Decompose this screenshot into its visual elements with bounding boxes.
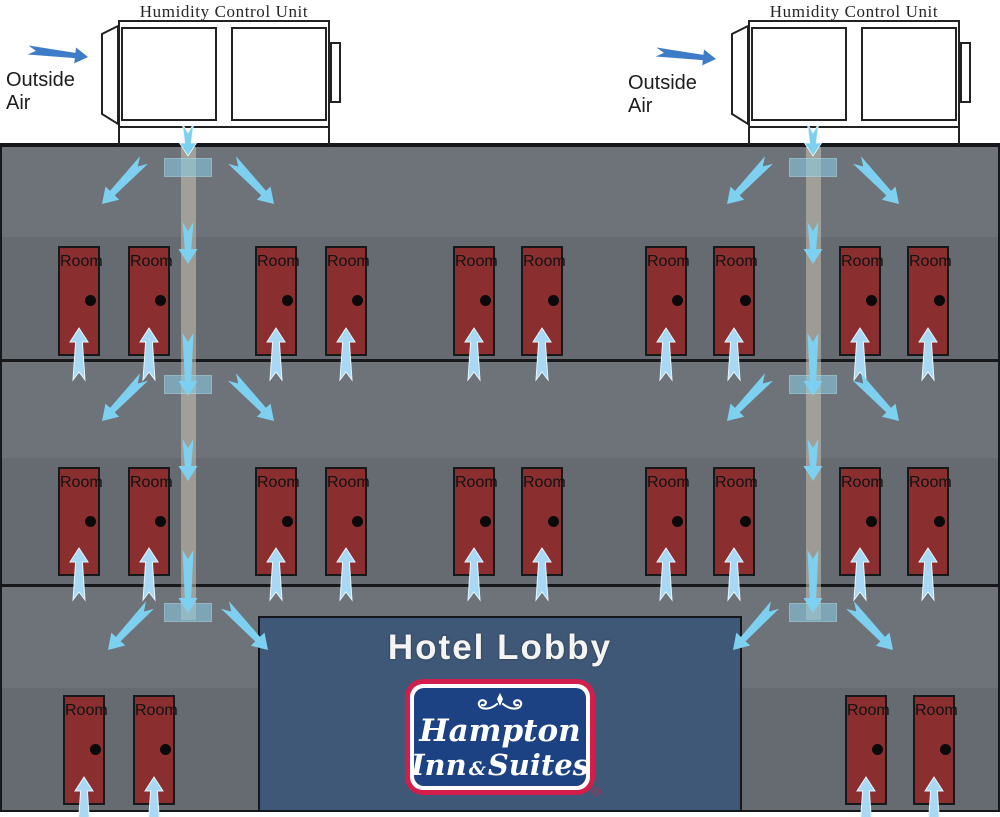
door-knob xyxy=(672,516,683,527)
room-door-label: Room xyxy=(909,253,947,271)
room-door: Room xyxy=(58,467,100,576)
outside-air-label: Outside Air xyxy=(628,72,697,118)
outside-air-label: Outside Air xyxy=(6,69,75,115)
room-door: Room xyxy=(839,467,881,576)
room-door-label: Room xyxy=(715,253,753,271)
hcu-panel xyxy=(231,27,327,121)
logo-face: Hampton Inn & Suites xyxy=(414,688,586,786)
diffuser-vent xyxy=(164,158,212,177)
room-door: Room xyxy=(713,467,755,576)
room-door: Room xyxy=(255,467,297,576)
lobby-title: Hotel Lobby xyxy=(260,628,740,668)
room-door-label: Room xyxy=(647,253,685,271)
room-door: Room xyxy=(521,467,563,576)
door-knob xyxy=(934,295,945,306)
logo-word-hampton: Hampton xyxy=(419,716,580,747)
room-door: Room xyxy=(907,467,949,576)
hcu-side-vent xyxy=(330,42,341,103)
room-door-label: Room xyxy=(455,253,493,271)
door-knob xyxy=(480,295,491,306)
diffuser-vent xyxy=(789,375,837,394)
door-knob xyxy=(155,295,166,306)
room-door: Room xyxy=(325,246,367,356)
room-door-label: Room xyxy=(60,253,98,271)
hcu-leg xyxy=(958,127,960,145)
room-door: Room xyxy=(521,246,563,356)
room-door-label: Room xyxy=(909,474,947,492)
door-knob xyxy=(740,516,751,527)
room-door-label: Room xyxy=(847,702,885,720)
room-door: Room xyxy=(325,467,367,576)
door-knob xyxy=(548,516,559,527)
room-door: Room xyxy=(63,695,105,805)
door-knob xyxy=(160,744,171,755)
floor-divider xyxy=(0,359,1000,362)
logo-ampersand: & xyxy=(469,760,486,779)
room-door-label: Room xyxy=(257,474,295,492)
logo-ornament-icon xyxy=(469,691,531,715)
outside-air-arrow-icon xyxy=(656,48,717,66)
room-door-label: Room xyxy=(257,253,295,271)
door-knob xyxy=(352,295,363,306)
door-knob xyxy=(90,744,101,755)
room-door: Room xyxy=(255,246,297,356)
room-door-label: Room xyxy=(841,474,879,492)
room-door-label: Room xyxy=(130,474,168,492)
hcu-leg xyxy=(328,127,330,145)
room-door: Room xyxy=(713,246,755,356)
logo-word-inn: Inn xyxy=(411,751,467,780)
diffuser-vent xyxy=(164,603,212,622)
door-knob xyxy=(872,744,883,755)
room-door-label: Room xyxy=(60,474,98,492)
hcu-title: Humidity Control Unit xyxy=(114,2,334,22)
door-knob xyxy=(282,295,293,306)
logo-inner-ring: Hampton Inn & Suites xyxy=(410,684,590,790)
room-door: Room xyxy=(839,246,881,356)
room-door-label: Room xyxy=(455,474,493,492)
registered-mark: ® xyxy=(592,785,601,799)
room-door-label: Room xyxy=(135,702,173,720)
floor-divider xyxy=(0,584,1000,587)
hcu-leg xyxy=(748,127,750,145)
room-door: Room xyxy=(907,246,949,356)
door-knob xyxy=(548,295,559,306)
diffuser-vent xyxy=(789,603,837,622)
door-knob xyxy=(866,295,877,306)
hcu-title: Humidity Control Unit xyxy=(744,2,964,22)
diffuser-vent xyxy=(789,158,837,177)
door-knob xyxy=(934,516,945,527)
room-door: Room xyxy=(845,695,887,805)
door-knob xyxy=(282,516,293,527)
room-door-label: Room xyxy=(327,474,365,492)
hcu-panel xyxy=(751,27,847,121)
door-knob xyxy=(480,516,491,527)
room-door-label: Room xyxy=(841,253,879,271)
door-knob xyxy=(672,295,683,306)
door-knob xyxy=(85,295,96,306)
door-knob xyxy=(85,516,96,527)
room-door: Room xyxy=(913,695,955,805)
room-door-label: Room xyxy=(523,253,561,271)
room-door-label: Room xyxy=(130,253,168,271)
diffuser-vent xyxy=(164,375,212,394)
room-door: Room xyxy=(645,246,687,356)
hcu-leg xyxy=(118,127,120,145)
hotel-airflow-diagram: RoomRoomRoomRoomRoomRoomRoomRoomRoomRoom… xyxy=(0,0,1000,817)
logo-word-suites: Suites xyxy=(488,751,589,780)
room-door-label: Room xyxy=(715,474,753,492)
room-door-label: Room xyxy=(523,474,561,492)
room-door: Room xyxy=(645,467,687,576)
door-knob xyxy=(940,744,951,755)
outside-air-arrow-icon xyxy=(28,46,89,64)
room-door-label: Room xyxy=(65,702,103,720)
hcu-side-vent xyxy=(960,42,971,103)
door-knob xyxy=(352,516,363,527)
hcu-intake-flap xyxy=(102,26,118,124)
room-door: Room xyxy=(128,246,170,356)
hcu-intake-flap xyxy=(732,26,748,124)
door-knob xyxy=(155,516,166,527)
hotel-lobby: Hotel Lobby Hampton Inn & Suites xyxy=(258,616,742,812)
hcu-panel xyxy=(861,27,957,121)
room-door: Room xyxy=(128,467,170,576)
hampton-logo: Hampton Inn & Suites ® xyxy=(405,679,595,795)
room-door-label: Room xyxy=(647,474,685,492)
door-knob xyxy=(866,516,877,527)
door-knob xyxy=(740,295,751,306)
room-door-label: Room xyxy=(327,253,365,271)
room-door-label: Room xyxy=(915,702,953,720)
room-door: Room xyxy=(453,467,495,576)
room-door: Room xyxy=(453,246,495,356)
hcu-panel xyxy=(121,27,217,121)
room-door: Room xyxy=(133,695,175,805)
room-door: Room xyxy=(58,246,100,356)
